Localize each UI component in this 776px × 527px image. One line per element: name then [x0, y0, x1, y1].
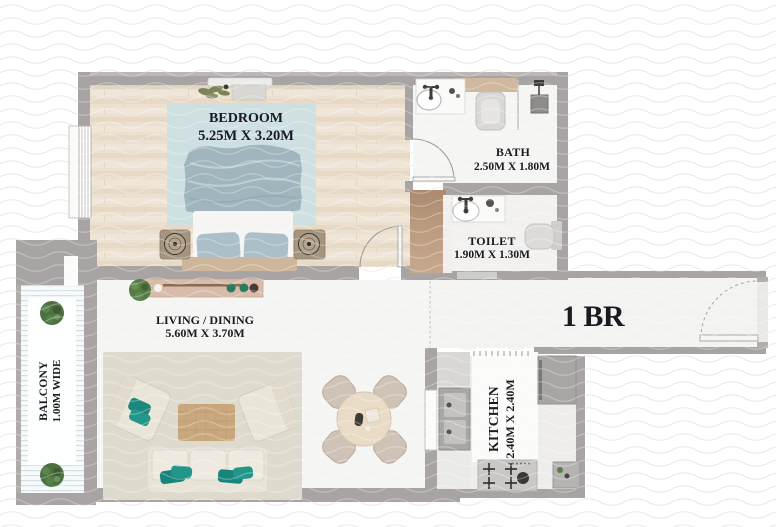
svg-text:LIVING / DINING: LIVING / DINING — [156, 313, 254, 327]
svg-text:KITCHEN: KITCHEN — [486, 386, 501, 452]
svg-text:BEDROOM: BEDROOM — [209, 111, 283, 126]
svg-text:TOILET: TOILET — [468, 234, 516, 248]
svg-text:1 BR: 1 BR — [562, 300, 625, 333]
svg-text:1.90M X 1.30M: 1.90M X 1.30M — [454, 249, 530, 261]
svg-text:2.50M X 1.80M: 2.50M X 1.80M — [474, 161, 550, 173]
svg-text:BALCONY: BALCONY — [38, 361, 50, 421]
svg-text:1.00M WIDE: 1.00M WIDE — [51, 360, 63, 423]
svg-text:5.60M X 3.70M: 5.60M X 3.70M — [165, 326, 244, 340]
svg-text:BATH: BATH — [496, 145, 531, 159]
svg-text:5.25M X 3.20M: 5.25M X 3.20M — [198, 128, 294, 144]
svg-text:2.40M X 2.40M: 2.40M X 2.40M — [503, 379, 517, 458]
